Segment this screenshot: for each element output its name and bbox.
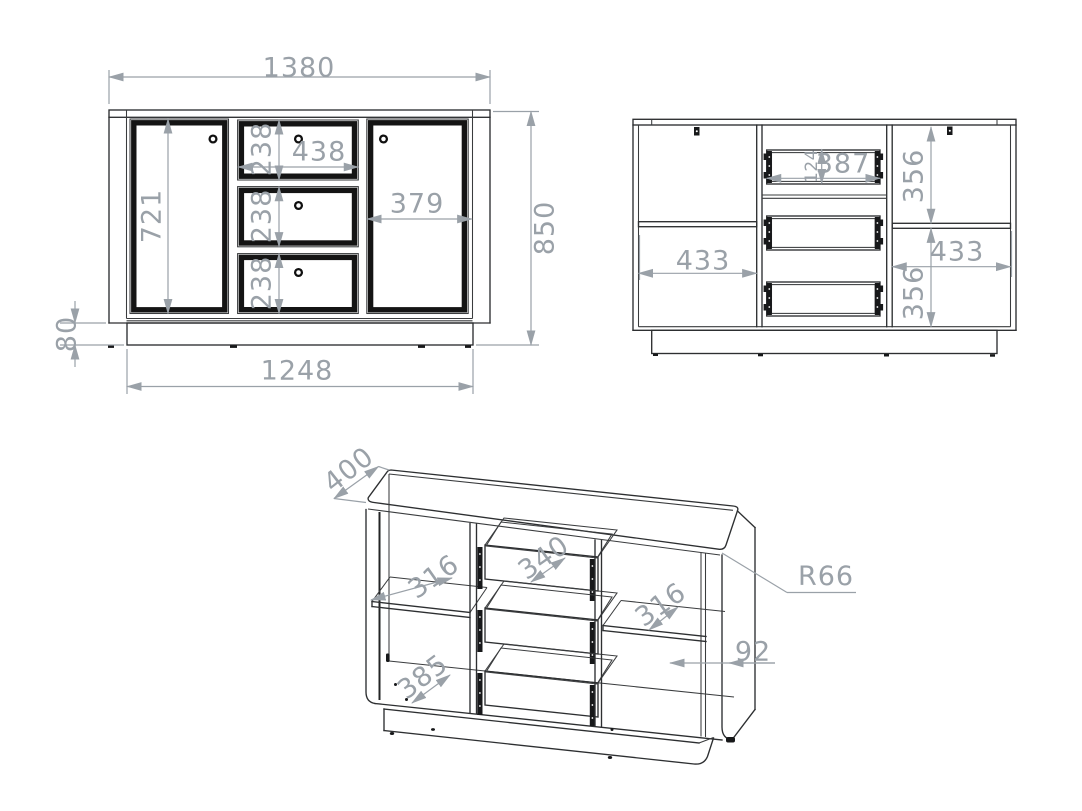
dim-front-overall-height: 850 [530,201,561,256]
dim-base-width: 1248 [261,356,334,387]
dim-drawer-3-height: 238 [247,256,278,311]
internal-left-shelf [639,222,757,227]
drawer-3-knob [295,269,302,276]
iso-drawer-box-3 [477,644,617,726]
dim-front-overall-width: 1380 [263,53,336,84]
front-plinth [127,323,473,345]
dim-left-compartment-width: 433 [676,246,731,277]
internal-plinth [652,330,997,353]
dim-depth: 400 [318,441,380,499]
dim-plinth-height: 80 [52,316,83,352]
front-view: 1380 850 721 238 238 238 438 379 [52,53,561,395]
isometric-view: 400 316 340 316 385 R66 92 [318,441,856,764]
dim-right-door-width: 379 [390,189,445,220]
dim-right-shelf-depth: 316 [630,577,692,634]
technical-drawing-page: 1380 850 721 238 238 238 438 379 [0,0,1082,811]
dim-right-compartment-width: 433 [930,237,985,268]
left-door-knob [210,136,217,143]
drawer-2-knob [295,202,302,209]
internal-drawer-box-3 [764,282,884,316]
furniture-dimension-drawing: 1380 850 721 238 238 238 438 379 [0,0,1082,811]
dim-drawer-2-height: 238 [247,189,278,244]
internal-drawer-box-2 [764,216,884,250]
dim-wall-clearance: 92 [735,637,771,668]
dim-left-shelf-depth: 316 [403,549,465,606]
dim-left-door-height: 721 [137,189,168,244]
dim-right-bottom-compartment-height: 356 [899,266,930,321]
iso-plinth [384,709,714,764]
dim-bottom-shelf-depth: 385 [392,648,454,706]
dim-drawer-1-height: 238 [247,122,278,177]
internal-right-shelf [892,223,1010,228]
dim-drawer-box-width: 387 [816,149,871,180]
dim-top-drawer-width: 438 [292,137,347,168]
internal-view: 124 387 356 356 433 433 [633,119,1016,356]
dim-right-top-compartment-height: 356 [899,149,930,204]
dim-corner-radius: R66 [798,561,854,592]
right-door-knob [380,136,387,143]
